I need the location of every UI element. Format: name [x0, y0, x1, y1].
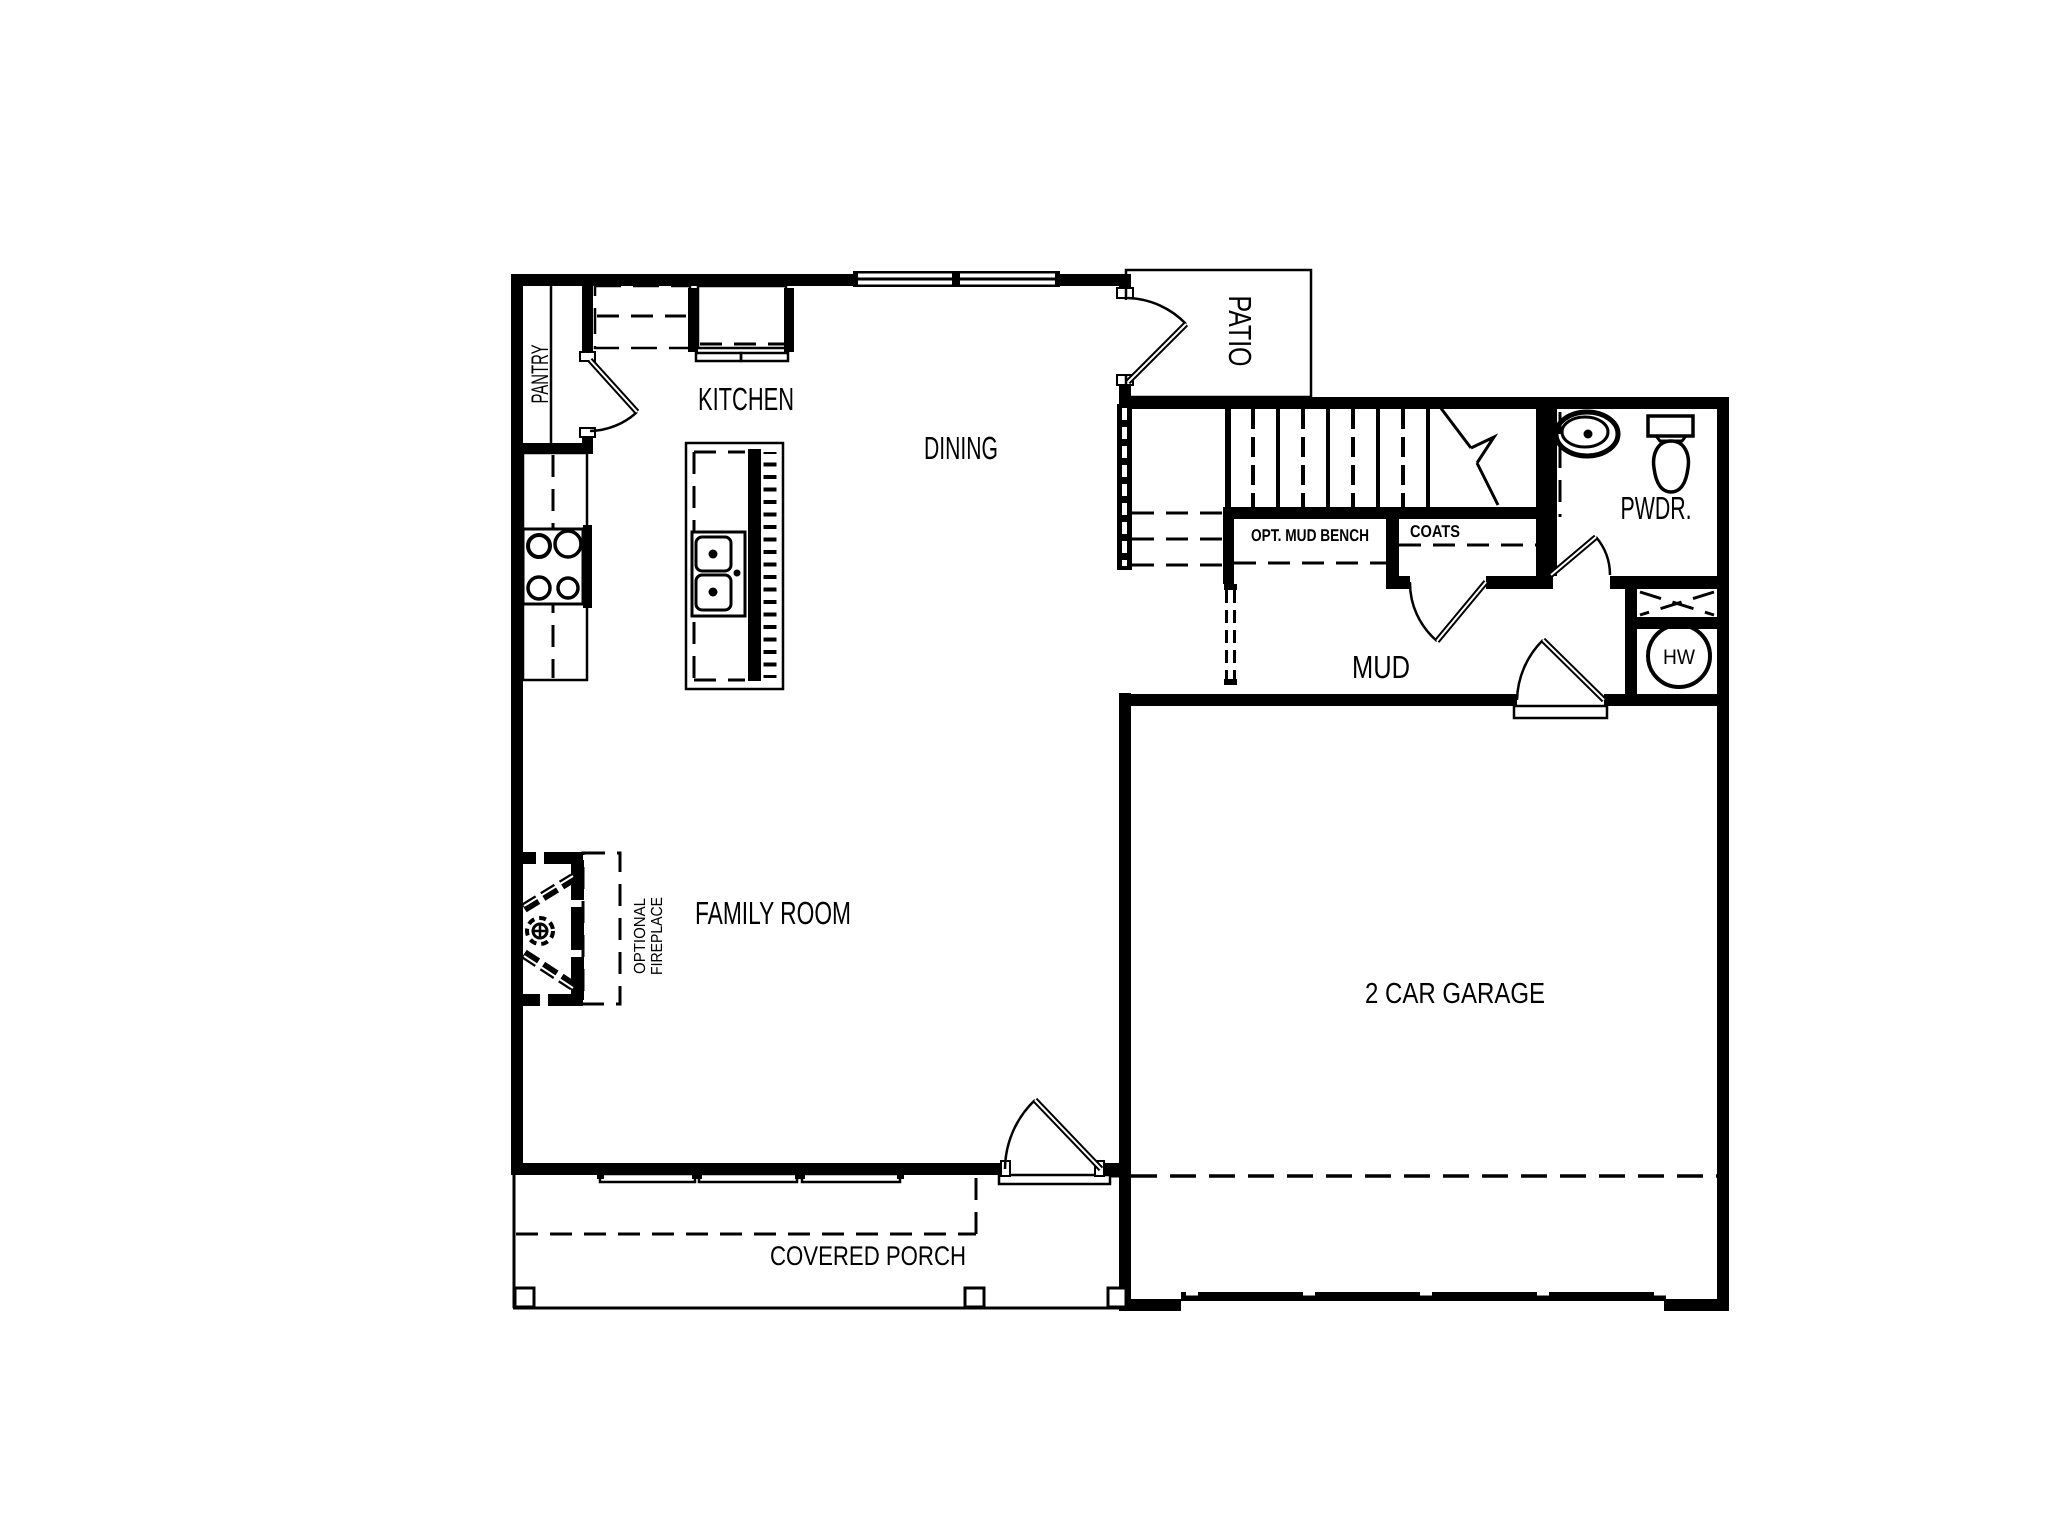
svg-text:OPTIONAL: OPTIONAL [632, 898, 649, 974]
svg-text:MUD: MUD [1352, 649, 1410, 685]
svg-text:COVERED PORCH: COVERED PORCH [770, 1241, 966, 1271]
svg-text:FAMILY ROOM: FAMILY ROOM [695, 895, 851, 931]
svg-text:2 CAR GARAGE: 2 CAR GARAGE [1365, 978, 1545, 1010]
svg-text:COATS: COATS [1410, 522, 1460, 541]
svg-text:PANTRY: PANTRY [527, 345, 554, 404]
svg-text:OPT. MUD BENCH: OPT. MUD BENCH [1251, 526, 1369, 545]
svg-text:PATIO: PATIO [1222, 296, 1258, 367]
svg-text:FIREPLACE: FIREPLACE [649, 897, 666, 975]
svg-text:HW: HW [1663, 646, 1695, 669]
svg-text:DINING: DINING [924, 430, 998, 466]
svg-text:PWDR.: PWDR. [1621, 490, 1692, 526]
svg-text:KITCHEN: KITCHEN [698, 381, 794, 417]
